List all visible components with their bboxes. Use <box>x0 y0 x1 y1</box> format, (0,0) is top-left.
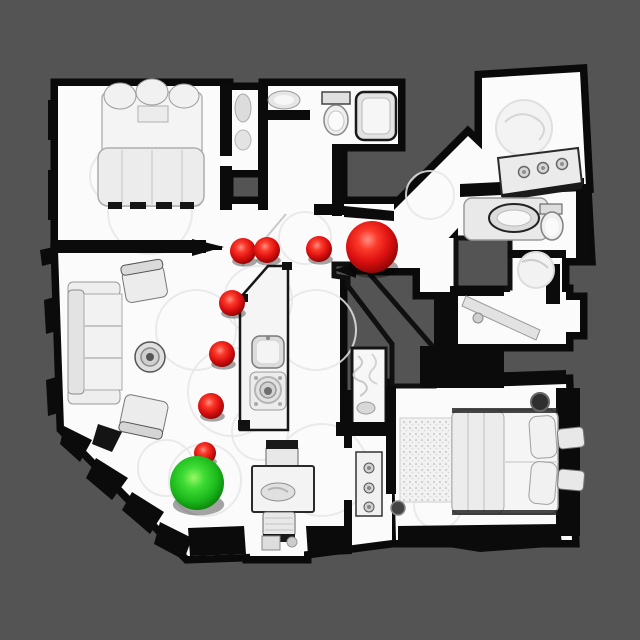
3d-scan-topdown-viewer[interactable] <box>0 0 640 640</box>
lamp <box>531 393 549 411</box>
sofa-back <box>68 290 84 394</box>
bed-top-left <box>98 79 204 209</box>
round-rug <box>518 252 554 288</box>
start-sphere <box>170 456 224 515</box>
duvet <box>452 410 504 514</box>
pillow <box>104 83 136 109</box>
plant-closet <box>352 348 386 424</box>
pillow <box>136 79 168 105</box>
dining-chair <box>266 446 298 468</box>
armchair <box>120 259 168 304</box>
pillow <box>528 461 558 505</box>
bed-post <box>557 469 585 491</box>
door-fixture <box>391 501 405 515</box>
bathroom-right <box>464 198 563 240</box>
map-canvas[interactable] <box>0 0 640 640</box>
sofa-seat <box>84 294 122 390</box>
hall-shelf <box>356 452 382 516</box>
rug <box>400 418 452 502</box>
void-pocket <box>456 238 510 288</box>
pillow <box>169 84 199 108</box>
bed-post <box>557 427 585 450</box>
pillow <box>529 415 558 459</box>
platter <box>261 483 295 501</box>
target-sphere <box>346 221 398 278</box>
